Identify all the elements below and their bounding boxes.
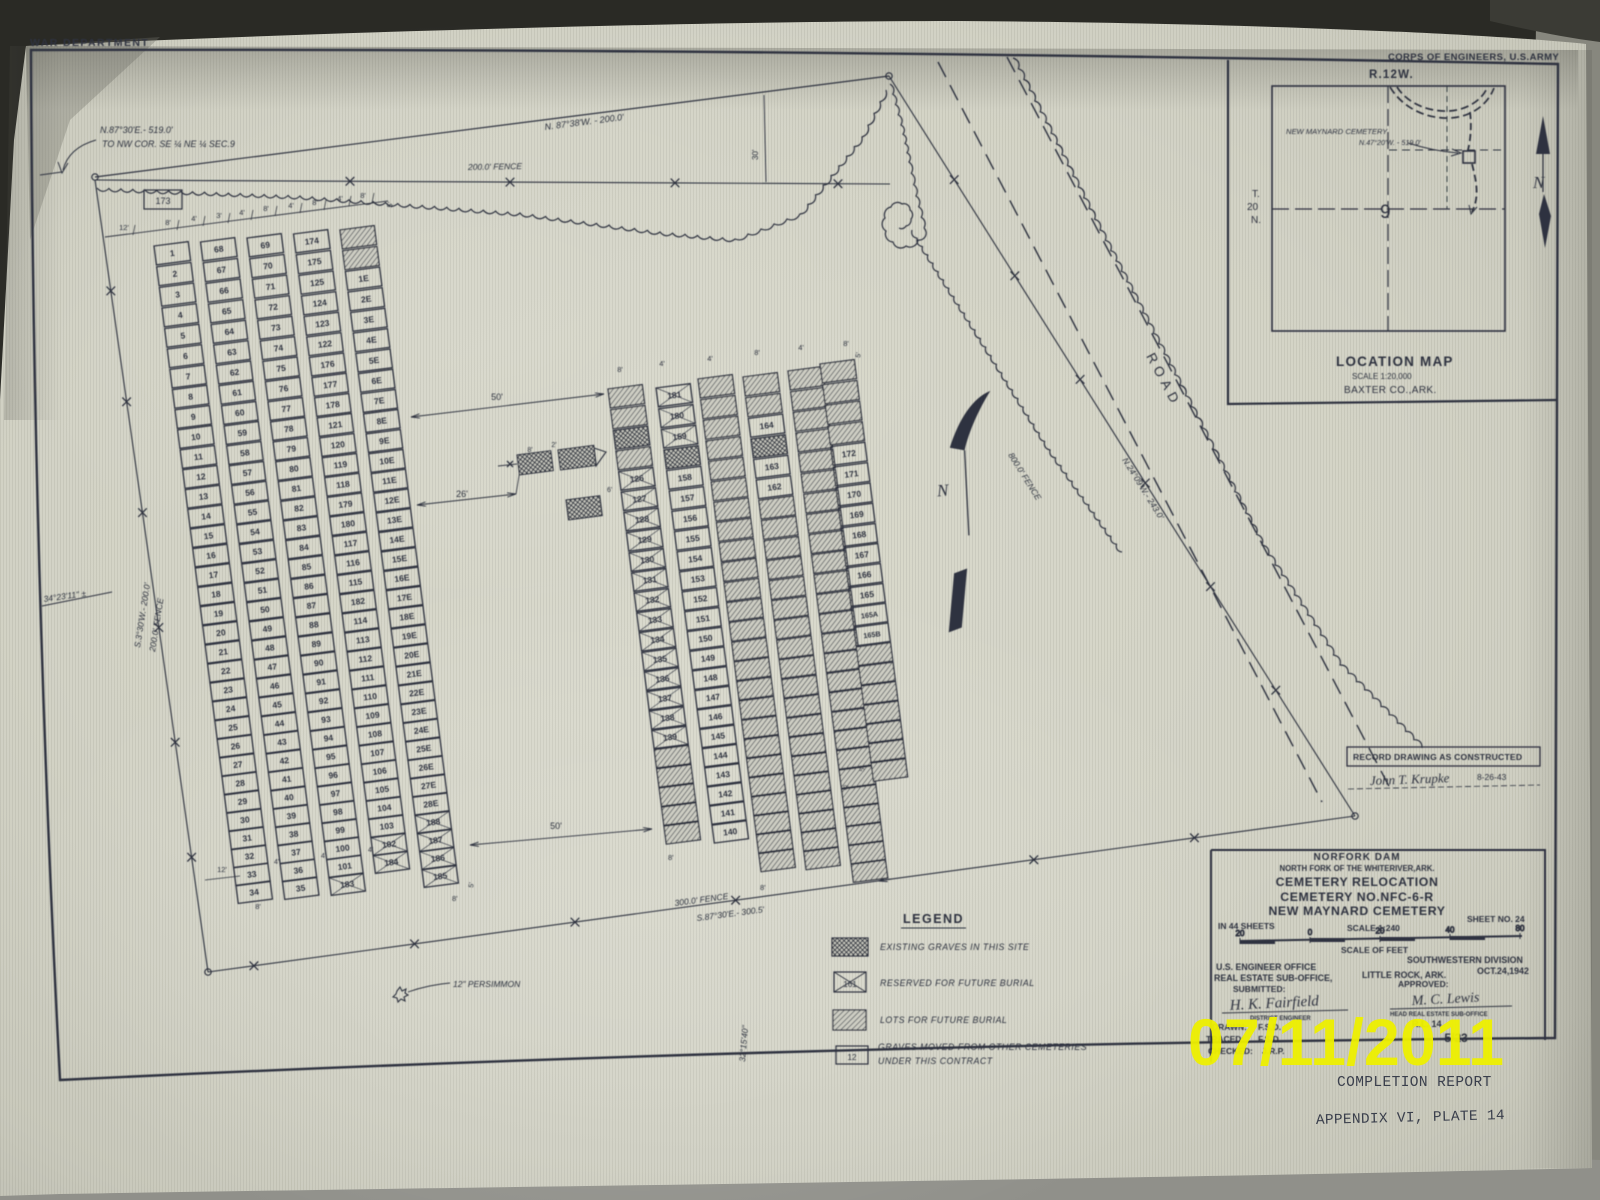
svg-text:92: 92 [318, 695, 329, 706]
svg-text:136: 136 [655, 673, 671, 685]
svg-text:100: 100 [335, 842, 351, 854]
svg-text:07/11/2011: 07/11/2011 [1188, 1005, 1504, 1079]
svg-text:168: 168 [852, 529, 868, 541]
svg-text:SCALE OF FEET: SCALE OF FEET [1341, 945, 1409, 955]
svg-text:8': 8' [754, 348, 760, 357]
svg-text:78: 78 [283, 423, 294, 434]
svg-text:8': 8' [312, 198, 318, 207]
svg-text:SHEET NO. 24: SHEET NO. 24 [1467, 914, 1525, 924]
svg-text:109: 109 [365, 709, 381, 721]
svg-text:19E: 19E [401, 630, 418, 642]
svg-text:John T. Krupke: John T. Krupke [1370, 770, 1450, 788]
svg-text:14: 14 [201, 511, 212, 522]
svg-text:134: 134 [650, 634, 666, 646]
svg-text:65: 65 [221, 305, 232, 316]
svg-text:66: 66 [219, 285, 230, 296]
svg-text:28E: 28E [423, 798, 440, 810]
svg-text:4': 4' [239, 208, 245, 217]
svg-text:147: 147 [705, 691, 721, 703]
svg-text:11E: 11E [382, 475, 398, 487]
svg-text:13: 13 [198, 491, 209, 502]
svg-text:6': 6' [607, 487, 612, 494]
svg-text:182: 182 [350, 596, 366, 608]
svg-text:95: 95 [325, 751, 336, 762]
svg-text:4': 4' [274, 859, 279, 866]
svg-text:NEW MAYNARD CEMETERY: NEW MAYNARD CEMETERY [1286, 127, 1388, 136]
svg-text:4': 4' [368, 847, 373, 854]
svg-text:183: 183 [339, 878, 355, 890]
svg-text:18E: 18E [399, 611, 416, 623]
svg-text:126: 126 [629, 473, 645, 485]
svg-text:SCALE 1:240: SCALE 1:240 [1347, 923, 1400, 933]
svg-text:149: 149 [700, 652, 716, 664]
svg-text:180: 180 [340, 518, 356, 530]
svg-text:43: 43 [277, 736, 288, 747]
svg-text:6E: 6E [371, 375, 383, 386]
svg-text:86: 86 [304, 581, 315, 592]
svg-text:180: 180 [669, 410, 685, 422]
svg-text:169: 169 [849, 509, 865, 521]
svg-text:1E: 1E [358, 273, 370, 284]
svg-text:80: 80 [1516, 924, 1525, 933]
svg-text:79: 79 [286, 443, 297, 454]
svg-text:22E: 22E [408, 687, 425, 699]
svg-text:2E: 2E [360, 293, 372, 304]
svg-text:WAR DEPARTMENT: WAR DEPARTMENT [30, 37, 149, 49]
svg-text:4': 4' [659, 359, 665, 368]
svg-text:NORFORK DAM: NORFORK DAM [1313, 852, 1400, 863]
svg-text:89: 89 [311, 638, 322, 649]
svg-text:64: 64 [224, 326, 235, 337]
svg-text:REAL ESTATE SUB-OFFICE,: REAL ESTATE SUB-OFFICE, [1214, 973, 1332, 983]
svg-text:127: 127 [632, 493, 648, 505]
svg-text:157: 157 [680, 492, 696, 504]
svg-text:15: 15 [203, 530, 214, 541]
svg-text:22: 22 [220, 665, 231, 676]
svg-text:39: 39 [286, 810, 297, 821]
svg-text:49: 49 [262, 623, 273, 634]
svg-text:NORTH FORK OF THE WHITERIVER,A: NORTH FORK OF THE WHITERIVER,ARK. [1279, 864, 1434, 873]
svg-text:121: 121 [328, 419, 344, 431]
svg-text:73: 73 [270, 322, 281, 333]
svg-text:130: 130 [640, 554, 656, 566]
svg-text:8E: 8E [376, 415, 388, 426]
svg-text:60: 60 [234, 407, 245, 418]
svg-text:57: 57 [242, 467, 253, 478]
svg-text:87: 87 [306, 600, 317, 611]
svg-text:54: 54 [250, 526, 261, 537]
svg-text:152: 152 [693, 593, 709, 605]
svg-text:88: 88 [309, 619, 320, 630]
svg-text:58: 58 [240, 447, 251, 458]
svg-text:26: 26 [230, 740, 241, 751]
svg-text:158: 158 [677, 472, 693, 484]
svg-text:8': 8' [360, 191, 366, 200]
svg-text:EXISTING GRAVES IN THIS SITE: EXISTING GRAVES IN THIS SITE [880, 942, 1029, 952]
svg-text:LOCATION MAP: LOCATION MAP [1336, 354, 1454, 369]
svg-text:83: 83 [296, 522, 307, 533]
svg-text:8': 8' [263, 204, 269, 213]
svg-text:16E: 16E [394, 572, 411, 584]
svg-text:20E: 20E [404, 649, 421, 661]
svg-text:171: 171 [844, 468, 860, 480]
svg-text:RESERVED FOR FUTURE BURIAL: RESERVED FOR FUTURE BURIAL [880, 978, 1035, 988]
svg-text:72: 72 [268, 301, 279, 312]
svg-text:142: 142 [718, 788, 734, 800]
svg-text:13E: 13E [386, 514, 403, 526]
svg-text:26E: 26E [418, 761, 435, 773]
svg-text:RECORD DRAWING AS CONSTRUCTED: RECORD DRAWING AS CONSTRUCTED [1353, 752, 1522, 762]
svg-text:12': 12' [119, 223, 129, 232]
svg-text:153: 153 [690, 573, 706, 585]
svg-text:143: 143 [715, 769, 731, 781]
svg-text:R.12W.: R.12W. [1369, 69, 1414, 81]
svg-text:35: 35 [295, 883, 306, 894]
svg-text:139: 139 [662, 731, 678, 743]
svg-text:55: 55 [247, 507, 258, 518]
svg-text:50': 50' [491, 392, 503, 402]
svg-text:30: 30 [240, 814, 251, 825]
svg-text:56: 56 [245, 487, 256, 498]
svg-text:24E: 24E [413, 724, 430, 736]
svg-text:N.: N. [1251, 215, 1261, 226]
svg-text:UNDER THIS CONTRACT: UNDER THIS CONTRACT [878, 1056, 993, 1066]
svg-text:85: 85 [301, 561, 312, 572]
svg-text:74: 74 [273, 342, 284, 353]
svg-text:101: 101 [337, 860, 353, 872]
svg-text:2': 2' [551, 442, 556, 449]
svg-text:119: 119 [333, 459, 348, 471]
svg-text:N.87°30'E.- 519.0': N.87°30'E.- 519.0' [100, 125, 173, 135]
svg-text:38: 38 [288, 828, 299, 839]
svg-text:9: 9 [1380, 202, 1391, 223]
svg-text:181: 181 [667, 389, 683, 401]
svg-text:104: 104 [377, 802, 393, 814]
svg-text:29: 29 [237, 796, 248, 807]
svg-text:96: 96 [328, 770, 339, 781]
svg-text:45: 45 [272, 699, 283, 710]
svg-text:8': 8' [165, 218, 171, 227]
svg-text:81: 81 [291, 483, 302, 494]
svg-text:SCALE 1:20,000: SCALE 1:20,000 [1352, 372, 1412, 381]
svg-text:116: 116 [346, 557, 361, 569]
svg-text:117: 117 [343, 538, 358, 550]
svg-text:148: 148 [703, 672, 719, 684]
svg-text:8': 8' [255, 902, 261, 911]
svg-text:165: 165 [859, 589, 875, 601]
svg-text:159: 159 [672, 431, 688, 443]
svg-text:163: 163 [764, 461, 780, 473]
svg-text:SOUTHWESTERN DIVISION: SOUTHWESTERN DIVISION [1407, 955, 1523, 965]
svg-text:69: 69 [260, 239, 271, 250]
svg-text:106: 106 [372, 765, 388, 777]
svg-text:67: 67 [216, 264, 227, 275]
svg-text:10E: 10E [379, 455, 396, 467]
svg-text:3E: 3E [363, 314, 375, 325]
svg-text:137: 137 [657, 692, 673, 704]
svg-text:11: 11 [193, 451, 203, 462]
svg-text:21E: 21E [406, 668, 423, 680]
svg-text:N.47°20'W. - 519.0': N.47°20'W. - 519.0' [1359, 138, 1421, 147]
svg-text:14E: 14E [389, 533, 406, 545]
svg-text:103: 103 [379, 820, 395, 832]
svg-text:184: 184 [384, 856, 400, 868]
svg-text:12: 12 [196, 471, 207, 482]
svg-text:8': 8' [843, 783, 849, 792]
svg-text:131: 131 [642, 574, 658, 586]
svg-text:12" PERSIMMON: 12" PERSIMMON [453, 979, 521, 989]
svg-text:144: 144 [713, 750, 729, 762]
svg-text:8': 8' [527, 447, 532, 454]
svg-text:CORPS OF ENGINEERS, U.S.ARMY: CORPS OF ENGINEERS, U.S.ARMY [1388, 52, 1559, 63]
svg-text:20: 20 [1236, 929, 1245, 938]
svg-text:4': 4' [321, 853, 326, 860]
svg-text:LEGEND: LEGEND [903, 912, 964, 926]
svg-text:176: 176 [320, 358, 336, 370]
svg-text:172: 172 [841, 448, 857, 460]
svg-text:114: 114 [353, 615, 368, 627]
svg-text:185: 185 [432, 870, 448, 882]
svg-text:99: 99 [335, 824, 346, 835]
svg-text:50': 50' [550, 821, 562, 831]
svg-text:46: 46 [269, 680, 280, 691]
svg-text:U.S. ENGINEER OFFICE: U.S. ENGINEER OFFICE [1216, 962, 1316, 972]
svg-text:125: 125 [309, 277, 325, 289]
svg-text:200.0' FENCE: 200.0' FENCE [467, 161, 523, 172]
svg-text:27E: 27E [420, 779, 437, 791]
svg-text:17E: 17E [396, 592, 413, 604]
svg-text:110: 110 [363, 691, 378, 703]
svg-text:37: 37 [291, 847, 302, 858]
svg-text:175: 175 [307, 256, 323, 268]
svg-text:OCT.24,1942: OCT.24,1942 [1477, 966, 1529, 976]
svg-text:52: 52 [255, 565, 266, 576]
svg-text:120: 120 [330, 439, 346, 451]
svg-text:27: 27 [232, 759, 243, 770]
svg-text:GRAVES MOVED FROM OTHER CEMETE: GRAVES MOVED FROM OTHER CEMETERIES [878, 1042, 1087, 1052]
svg-text:IN 44 SHEETS: IN 44 SHEETS [1218, 921, 1275, 931]
svg-text:155: 155 [685, 533, 701, 545]
svg-text:76: 76 [278, 383, 289, 394]
svg-text:15E: 15E [391, 553, 408, 565]
svg-text:122: 122 [317, 338, 333, 350]
svg-text:42: 42 [279, 755, 290, 766]
svg-text:111: 111 [360, 672, 375, 684]
svg-text:41: 41 [281, 774, 292, 785]
svg-text:115: 115 [348, 576, 363, 588]
svg-text:16: 16 [206, 550, 217, 561]
svg-text:25: 25 [228, 722, 239, 733]
svg-text:123: 123 [315, 318, 331, 330]
svg-text:10: 10 [190, 431, 201, 442]
svg-text:173: 173 [155, 196, 170, 206]
svg-text:20: 20 [1376, 927, 1385, 936]
svg-text:132: 132 [645, 594, 661, 606]
svg-text:19: 19 [213, 608, 224, 619]
svg-text:178: 178 [325, 399, 341, 411]
svg-text:156: 156 [682, 512, 698, 524]
svg-text:32: 32 [244, 851, 255, 862]
svg-text:4E: 4E [366, 334, 378, 345]
svg-text:4': 4' [798, 343, 804, 352]
svg-text:24: 24 [225, 703, 236, 714]
svg-text:8-26-43: 8-26-43 [1477, 772, 1507, 782]
svg-text:23E: 23E [411, 705, 428, 717]
svg-text:145: 145 [710, 730, 726, 742]
svg-text:140: 140 [723, 826, 739, 838]
svg-text:174: 174 [304, 235, 320, 247]
svg-text:N: N [1532, 173, 1546, 192]
svg-text:186: 186 [430, 852, 446, 864]
svg-text:128: 128 [634, 513, 650, 525]
svg-text:8': 8' [617, 365, 623, 374]
svg-text:23: 23 [223, 684, 234, 695]
svg-text:113: 113 [355, 634, 370, 646]
svg-text:44: 44 [274, 718, 285, 729]
svg-text:154: 154 [688, 553, 704, 565]
svg-text:102: 102 [381, 838, 397, 850]
svg-text:26': 26' [456, 489, 468, 499]
svg-text:84: 84 [299, 542, 310, 553]
svg-text:17: 17 [208, 569, 219, 580]
svg-text:9E: 9E [379, 435, 391, 446]
svg-text:82: 82 [294, 503, 305, 514]
svg-text:LOTS FOR FUTURE BURIAL: LOTS FOR FUTURE BURIAL [880, 1015, 1007, 1025]
svg-text:179: 179 [338, 498, 354, 510]
svg-text:112: 112 [358, 653, 373, 665]
svg-text:108: 108 [367, 728, 383, 740]
svg-text:51: 51 [257, 585, 268, 596]
svg-text:187: 187 [428, 834, 444, 846]
svg-text:75: 75 [276, 363, 287, 374]
svg-text:SUBMITTED:: SUBMITTED: [1233, 984, 1286, 994]
svg-text:97: 97 [330, 788, 341, 799]
svg-text:CEMETERY NO.NFC-6-R: CEMETERY NO.NFC-6-R [1280, 890, 1434, 904]
svg-text:91: 91 [316, 676, 327, 687]
svg-text:7E: 7E [373, 395, 385, 406]
svg-text:20: 20 [216, 627, 227, 638]
svg-text:5E: 5E [368, 355, 380, 366]
svg-text:30': 30' [751, 149, 760, 160]
svg-text:47: 47 [267, 661, 278, 672]
svg-text:BAXTER CO.,ARK.: BAXTER CO.,ARK. [1344, 385, 1437, 396]
svg-text:90: 90 [313, 657, 324, 668]
svg-text:161: 161 [843, 980, 857, 989]
svg-text:105: 105 [374, 784, 390, 796]
svg-text:4': 4' [288, 201, 294, 210]
svg-text:164: 164 [759, 420, 775, 432]
svg-text:170: 170 [846, 488, 862, 500]
svg-text:4': 4' [707, 354, 713, 363]
svg-text:8': 8' [843, 339, 849, 348]
svg-text:138: 138 [660, 712, 676, 724]
svg-text:31: 31 [242, 832, 253, 843]
svg-text:94: 94 [323, 732, 334, 743]
svg-text:80: 80 [289, 463, 300, 474]
svg-text:166: 166 [857, 569, 873, 581]
svg-text:40: 40 [1446, 925, 1455, 934]
svg-text:0: 0 [1308, 928, 1313, 937]
svg-text:CEMETERY RELOCATION: CEMETERY RELOCATION [1276, 875, 1439, 889]
svg-text:12: 12 [848, 1053, 857, 1062]
svg-text:93: 93 [321, 714, 332, 725]
svg-text:188: 188 [426, 816, 442, 828]
svg-text:177: 177 [322, 379, 338, 391]
svg-text:59: 59 [237, 427, 248, 438]
svg-text:135: 135 [652, 653, 668, 665]
svg-text:20: 20 [1247, 202, 1259, 213]
svg-text:118: 118 [335, 479, 350, 491]
svg-text:25E: 25E [416, 743, 433, 755]
svg-text:70: 70 [263, 260, 274, 271]
svg-text:53: 53 [252, 546, 263, 557]
svg-text:61: 61 [232, 387, 243, 398]
svg-text:33: 33 [246, 869, 257, 880]
svg-text:8': 8' [452, 894, 458, 903]
svg-text:12E: 12E [384, 494, 401, 506]
svg-text:162: 162 [767, 481, 783, 493]
svg-text:48: 48 [264, 642, 275, 653]
svg-text:141: 141 [720, 807, 736, 819]
svg-text:50: 50 [260, 604, 271, 615]
svg-text:133: 133 [647, 614, 663, 626]
svg-text:63: 63 [227, 346, 238, 357]
svg-text:146: 146 [708, 711, 724, 723]
svg-text:98: 98 [333, 806, 344, 817]
svg-text:34: 34 [249, 887, 260, 898]
svg-text:4': 4' [191, 214, 197, 223]
svg-text:18: 18 [211, 589, 222, 600]
svg-text:T.: T. [1252, 189, 1260, 200]
svg-text:167: 167 [854, 549, 870, 561]
svg-text:28: 28 [235, 778, 246, 789]
svg-text:68: 68 [213, 243, 224, 254]
svg-text:8': 8' [760, 883, 766, 892]
svg-text:107: 107 [370, 747, 386, 759]
svg-text:36: 36 [293, 865, 304, 876]
svg-text:124: 124 [312, 297, 328, 309]
svg-text:71: 71 [265, 281, 276, 292]
svg-text:APPROVED:: APPROVED: [1398, 979, 1449, 989]
svg-text:TO NW COR. SE ¼ NE ¼ SEC.9: TO NW COR. SE ¼ NE ¼ SEC.9 [102, 139, 235, 149]
svg-text:21: 21 [218, 646, 229, 657]
svg-text:4': 4' [337, 194, 343, 203]
svg-text:8': 8' [668, 853, 674, 862]
svg-text:12': 12' [217, 865, 227, 874]
svg-text:77: 77 [281, 403, 292, 414]
svg-text:NEW MAYNARD CEMETERY: NEW MAYNARD CEMETERY [1268, 904, 1445, 918]
svg-text:40: 40 [284, 792, 295, 803]
svg-text:3': 3' [216, 211, 222, 220]
svg-text:62: 62 [229, 367, 240, 378]
svg-text:129: 129 [637, 534, 653, 546]
svg-text:151: 151 [695, 613, 711, 625]
svg-text:150: 150 [698, 633, 714, 645]
